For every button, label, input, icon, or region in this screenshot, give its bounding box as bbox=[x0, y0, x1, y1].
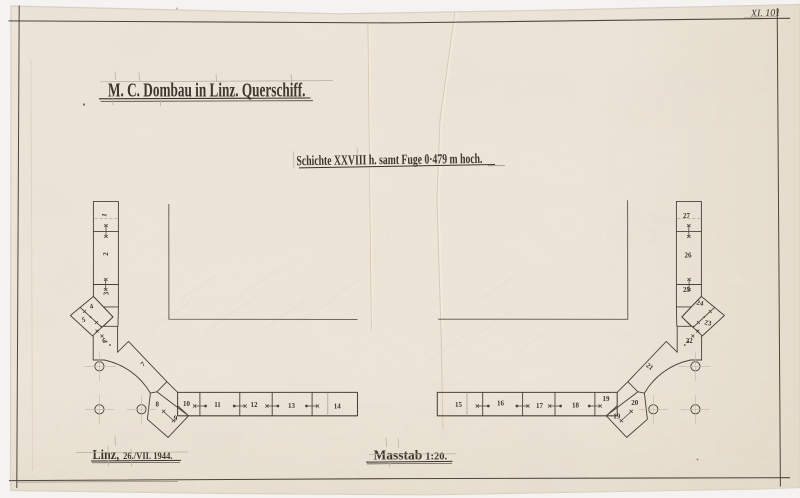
svg-text:20: 20 bbox=[631, 399, 639, 407]
svg-text:2: 2 bbox=[102, 252, 110, 256]
svg-text:9: 9 bbox=[174, 415, 178, 423]
svg-text:26: 26 bbox=[685, 252, 693, 260]
svg-text:27: 27 bbox=[683, 212, 691, 220]
svg-text:13: 13 bbox=[288, 402, 296, 410]
svg-text:8: 8 bbox=[156, 401, 160, 409]
svg-text:19: 19 bbox=[603, 395, 611, 403]
svg-text:25: 25 bbox=[683, 286, 691, 294]
svg-text:12: 12 bbox=[251, 401, 259, 409]
svg-text:6: 6 bbox=[102, 337, 106, 345]
svg-text:15: 15 bbox=[455, 401, 463, 409]
svg-text:17: 17 bbox=[536, 402, 544, 410]
svg-text:11: 11 bbox=[214, 401, 221, 409]
svg-text:19: 19 bbox=[613, 412, 621, 420]
svg-text:10: 10 bbox=[183, 400, 191, 408]
svg-text:3: 3 bbox=[103, 291, 111, 295]
svg-text:14: 14 bbox=[334, 403, 342, 411]
svg-text:18: 18 bbox=[572, 401, 580, 409]
svg-text:16: 16 bbox=[497, 400, 505, 408]
svg-text:XI. 101: XI. 101 bbox=[750, 7, 781, 19]
svg-text:22: 22 bbox=[686, 337, 694, 345]
